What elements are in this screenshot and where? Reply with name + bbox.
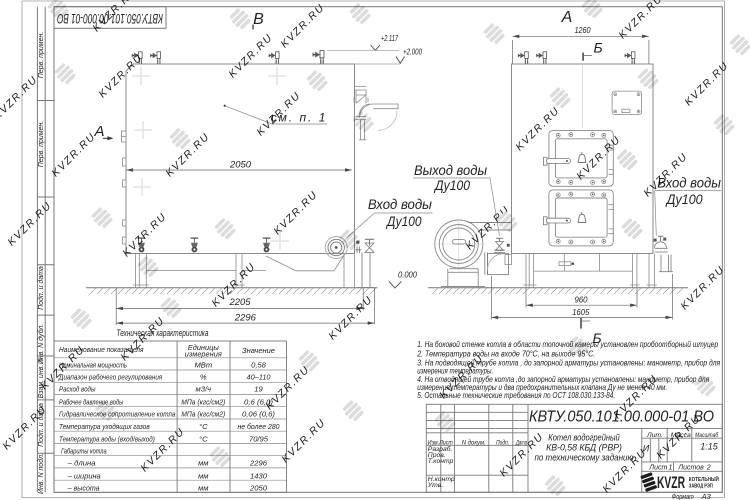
svg-text:%: % — [200, 373, 207, 382]
svg-text:2296: 2296 — [249, 459, 268, 468]
svg-text:1430: 1430 — [250, 471, 268, 480]
svg-text:– высота: – высота — [67, 484, 100, 493]
svg-text:70/95: 70/95 — [249, 434, 269, 443]
svg-text:1:15: 1:15 — [700, 442, 719, 452]
svg-text:Техническая характеристика: Техническая характеристика — [117, 328, 209, 338]
svg-text:Значение: Значение — [242, 346, 275, 355]
svg-text:1605: 1605 — [572, 307, 589, 317]
svg-text:1: 1 — [669, 464, 673, 471]
svg-text:Масштаб: Масштаб — [695, 431, 719, 439]
svg-text:Перв. примен.: Перв. примен. — [38, 32, 45, 79]
svg-text:– длина: – длина — [67, 459, 96, 468]
svg-text:Рабочее давление воды: Рабочее давление воды — [59, 397, 124, 406]
svg-text:Ду100: Ду100 — [385, 213, 421, 229]
svg-text:Габариты котла: Габариты котла — [61, 447, 107, 456]
svg-text:МВт: МВт — [194, 360, 212, 369]
svg-text:Выход воды: Выход воды — [414, 162, 488, 178]
svg-text:2296: 2296 — [234, 313, 257, 324]
svg-text:°С: °С — [199, 422, 208, 431]
svg-text:Температура уходящих газов: Температура уходящих газов — [59, 422, 150, 431]
svg-text:KVZR: KVZR — [657, 473, 685, 492]
svg-text:Температура воды (вход/выход): Температура воды (вход/выход) — [59, 434, 155, 443]
svg-text:Т.контр: Т.контр — [428, 458, 454, 465]
svg-text:МПа (кгс/см2): МПа (кгс/см2) — [181, 410, 225, 419]
svg-text:Подп.: Подп. — [496, 438, 509, 446]
svg-text:ЗАВОД РЭП: ЗАВОД РЭП — [689, 484, 713, 490]
svg-text:19: 19 — [254, 385, 263, 394]
svg-text:Ду100: Ду100 — [665, 191, 703, 207]
svg-text:Диапазон рабочего регулировани: Диапазон рабочего регулирования — [58, 373, 162, 382]
svg-text:Ду100: Ду100 — [433, 177, 470, 193]
svg-text:А: А — [561, 9, 573, 26]
svg-text:измерения: измерения — [185, 350, 222, 359]
svg-text:не более 280: не более 280 — [238, 422, 281, 431]
svg-text:В: В — [253, 11, 264, 28]
svg-text:Формат: Формат — [672, 492, 694, 500]
svg-text:МПа (кгс/см2): МПа (кгс/см2) — [181, 397, 225, 406]
svg-text:Б: Б — [593, 40, 602, 56]
svg-text:+2.000: +2.000 — [403, 47, 422, 57]
svg-text:Утв.: Утв. — [427, 482, 444, 489]
svg-text:2: 2 — [706, 464, 711, 471]
svg-text:40–110: 40–110 — [247, 373, 272, 382]
svg-text:°С: °С — [199, 434, 208, 443]
svg-text:Перв. примен.: Перв. примен. — [38, 121, 45, 168]
svg-text:Инв. N подл.: Инв. N подл. — [37, 453, 45, 494]
svg-text:Вход воды: Вход воды — [368, 196, 433, 212]
svg-text:Листов: Листов — [677, 464, 704, 471]
svg-text:0.000: 0.000 — [398, 271, 418, 280]
svg-text:N докум.: N докум. — [462, 438, 486, 446]
svg-text:мм: мм — [198, 459, 209, 468]
svg-text:КОТЕЛЬНЫЙ: КОТЕЛЬНЫЙ — [689, 475, 719, 483]
svg-text:+2.117: +2.117 — [381, 33, 398, 43]
svg-text:2050: 2050 — [229, 159, 252, 170]
svg-text:Подп. и дата: Подп. и дата — [37, 266, 45, 310]
svg-text:– ширина: – ширина — [67, 471, 101, 480]
svg-text:Расход воды: Расход воды — [59, 385, 96, 394]
svg-text:Лист: Лист — [648, 464, 667, 471]
svg-text:0,58: 0,58 — [251, 360, 267, 369]
svg-text:Лит.: Лит. — [646, 432, 663, 439]
svg-text:мм: мм — [198, 484, 209, 493]
svg-text:А3: А3 — [701, 492, 712, 500]
svg-text:1260: 1260 — [575, 25, 591, 35]
svg-text:по техническому заданию: по техническому заданию — [534, 452, 633, 463]
svg-text:Гидравлическое сопротивление к: Гидравлическое сопротивление котла — [59, 410, 176, 419]
svg-text:960: 960 — [575, 294, 588, 304]
svg-text:м3/ч: м3/ч — [196, 385, 212, 394]
svg-text:2205: 2205 — [229, 297, 252, 308]
svg-text:мм: мм — [198, 471, 209, 480]
svg-text:1. На боковой стенке котла в: 1. На боковой стенке котла в области топ… — [417, 339, 718, 349]
svg-text:2050: 2050 — [249, 484, 268, 493]
